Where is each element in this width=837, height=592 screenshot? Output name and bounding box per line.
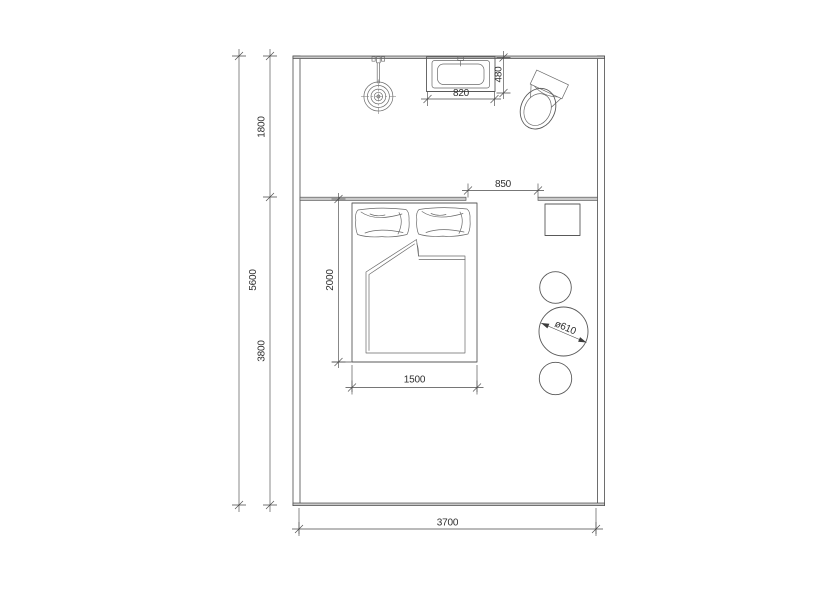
dim-label-basin-depth: 480 bbox=[494, 66, 505, 83]
dim-label-opening: 850 bbox=[495, 179, 512, 190]
walls bbox=[293, 56, 605, 506]
dim-zone-depths-1800-3800: 1800 3800 bbox=[257, 49, 278, 512]
double-bed bbox=[352, 203, 477, 362]
partition-wall-left bbox=[300, 197, 466, 200]
left-wall bbox=[293, 56, 300, 506]
dim-label-bedroom-depth: 3800 bbox=[257, 340, 268, 362]
dim-room-width-3700: 3700 bbox=[292, 508, 603, 536]
dim-label-bath-depth: 1800 bbox=[257, 116, 268, 138]
partition-wall-right bbox=[538, 197, 598, 200]
dim-basin-width-820: 820 bbox=[421, 88, 501, 106]
dim-bed-width-1500: 1500 bbox=[346, 365, 484, 395]
dim-label-room-width: 3700 bbox=[437, 518, 459, 529]
dim-label-table-diameter: ø610 bbox=[553, 319, 578, 338]
nightstand bbox=[545, 204, 580, 236]
dim-bed-length-2000: 2000 bbox=[325, 193, 352, 368]
washbasin bbox=[427, 57, 496, 92]
dim-label-basin-width: 820 bbox=[453, 88, 470, 99]
toilet-bowl bbox=[514, 82, 563, 134]
dim-label-overall-depth: 5600 bbox=[248, 269, 259, 291]
duvet bbox=[366, 240, 465, 354]
floor-plan-canvas: 5600 1800 3800 3700 850 820 480 2000 150… bbox=[0, 0, 837, 592]
bed-frame bbox=[352, 203, 477, 362]
floor-plan-drawing: 5600 1800 3800 3700 850 820 480 2000 150… bbox=[0, 0, 837, 592]
stool-top bbox=[540, 272, 572, 304]
dim-table-diameter-610: ø610 bbox=[541, 319, 587, 343]
shower-head bbox=[361, 57, 396, 114]
dim-label-bed-width: 1500 bbox=[404, 375, 426, 386]
toilet bbox=[513, 70, 568, 135]
pillow-left bbox=[356, 208, 410, 237]
dim-label-bed-length: 2000 bbox=[325, 269, 336, 291]
dim-opening-850: 850 bbox=[462, 179, 544, 198]
stool-bottom bbox=[539, 362, 571, 394]
bottom-wall bbox=[293, 503, 605, 506]
pillow-right bbox=[417, 208, 471, 237]
right-wall bbox=[598, 56, 605, 506]
dim-overall-depth-5600: 5600 bbox=[232, 49, 259, 512]
